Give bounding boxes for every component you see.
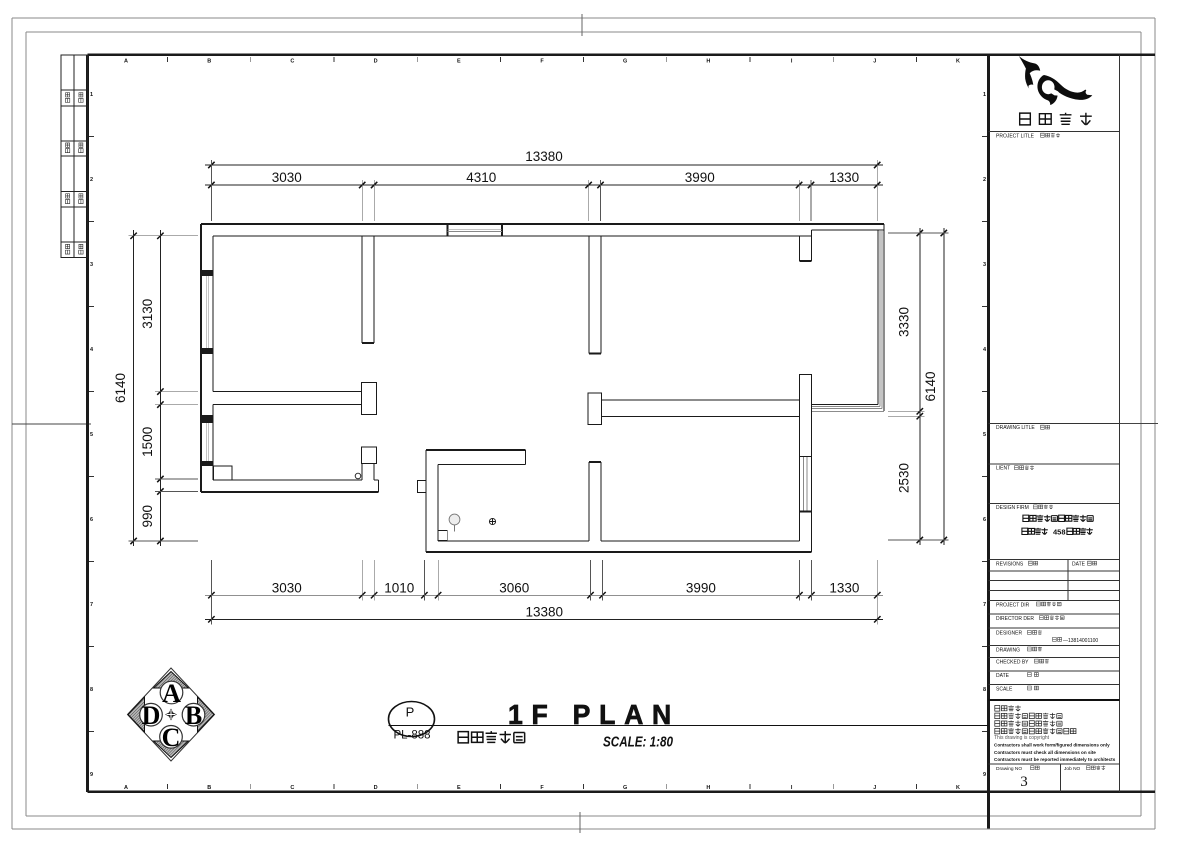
svg-text:1330: 1330 [829,170,859,185]
svg-text:3030: 3030 [272,581,302,596]
svg-text:This drawing is copyright: This drawing is copyright [994,735,1050,741]
svg-text:7: 7 [90,602,93,608]
svg-text:PROJECT DIR: PROJECT DIR [996,602,1030,608]
svg-text:9: 9 [90,772,93,778]
svg-text:2: 2 [90,177,93,183]
svg-text:13380: 13380 [526,605,564,620]
svg-text:Contractors shall work form/fi: Contractors shall work form/figured dime… [994,742,1110,747]
svg-text:6: 6 [90,517,93,523]
svg-text:3: 3 [1020,774,1028,790]
svg-text:DESIGNER: DESIGNER [996,631,1023,637]
svg-text:1010: 1010 [384,581,414,596]
svg-text:3: 3 [90,262,93,268]
svg-text:1: 1 [90,92,93,98]
svg-text:A: A [162,679,181,708]
svg-text:8: 8 [90,687,93,693]
svg-text:A: A [124,59,128,65]
svg-text:DESIGN FIRM: DESIGN FIRM [996,505,1029,511]
svg-text:E: E [457,785,461,791]
svg-text:6140: 6140 [113,373,128,403]
svg-text:1F PLAN: 1F PLAN [508,699,680,730]
svg-text:13380: 13380 [525,149,563,164]
svg-text:3990: 3990 [686,581,716,596]
svg-text:DRAWING: DRAWING [996,647,1020,653]
svg-text:B: B [207,59,211,65]
svg-text:1: 1 [983,92,986,98]
svg-text:3130: 3130 [140,299,155,329]
svg-text:J: J [873,785,876,791]
svg-text:3030: 3030 [272,170,302,185]
svg-text:—13814001100: —13814001100 [1063,638,1098,644]
svg-text:B: B [185,701,202,730]
svg-text:J: J [873,59,876,65]
svg-text:SCALE: 1:80: SCALE: 1:80 [603,734,673,751]
svg-text:5: 5 [90,432,93,438]
svg-text:P: P [406,705,415,720]
svg-text:K: K [956,59,960,65]
svg-text:9: 9 [983,772,986,778]
svg-text:3: 3 [983,262,986,268]
svg-text:H: H [706,785,710,791]
svg-text:REVISIONS: REVISIONS [996,562,1024,568]
svg-text:D: D [142,701,161,730]
svg-text:8: 8 [983,687,986,693]
svg-text:B: B [207,785,211,791]
svg-text:G: G [623,785,627,791]
svg-text:Job NO: Job NO [1064,766,1081,772]
svg-text:3060: 3060 [499,581,529,596]
svg-text:4310: 4310 [466,170,496,185]
svg-text:K: K [956,785,960,791]
svg-text:7: 7 [983,602,986,608]
svg-text:3330: 3330 [897,307,912,337]
svg-text:CHECKED BY: CHECKED BY [996,660,1029,666]
svg-text:Drawing NO: Drawing NO [996,766,1022,772]
svg-text:990: 990 [140,505,155,528]
svg-text:DATE: DATE [1072,562,1086,568]
svg-text:6140: 6140 [923,371,938,401]
svg-text:D: D [374,59,378,65]
svg-text:D: D [374,785,378,791]
svg-text:PL-888: PL-888 [393,730,430,742]
svg-text:Contractors must be reported i: Contractors must be reported immediately… [994,757,1116,762]
svg-text:C: C [162,723,181,752]
svg-text:A: A [124,785,128,791]
svg-text:5: 5 [983,432,986,438]
svg-text:PROJECT LITLE: PROJECT LITLE [996,133,1035,139]
svg-text:3990: 3990 [685,170,715,185]
svg-text:2530: 2530 [897,463,912,493]
svg-text:SCALE: SCALE [996,686,1013,692]
svg-text:Contractors must check all dim: Contractors must check all dimensions on… [994,750,1096,755]
svg-text:G: G [623,59,627,65]
svg-text:C: C [290,785,294,791]
svg-text:H: H [706,59,710,65]
svg-text:DRAWING LITLE: DRAWING LITLE [996,425,1035,431]
svg-text:6: 6 [983,517,986,523]
svg-text:2: 2 [983,177,986,183]
svg-text:DIRECTOR DER: DIRECTOR DER [996,616,1034,622]
svg-text:LIENT: LIENT [996,466,1010,472]
svg-text:458: 458 [1053,527,1066,536]
svg-text:DATE: DATE [996,673,1010,679]
svg-text:1500: 1500 [140,427,155,457]
svg-text:1330: 1330 [829,581,859,596]
svg-text:C: C [290,59,294,65]
svg-text:E: E [457,59,461,65]
